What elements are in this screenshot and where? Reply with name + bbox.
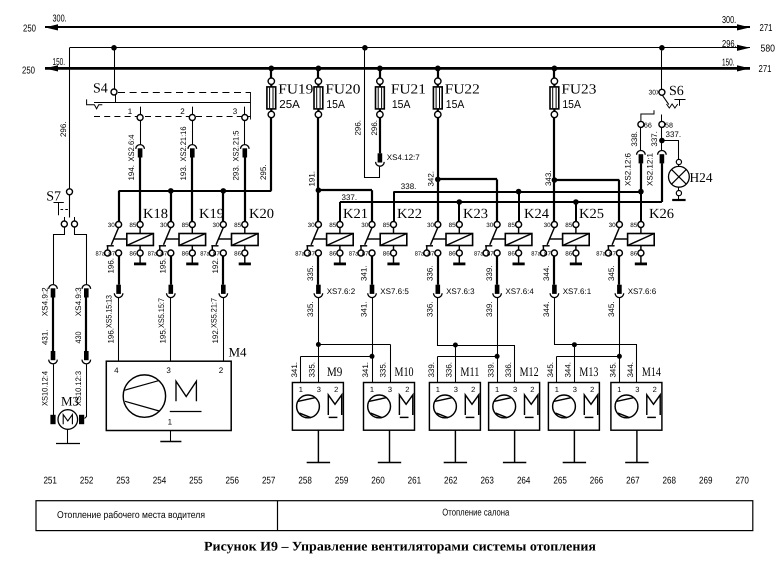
svg-text:195.: 195. xyxy=(159,258,168,274)
svg-text:250: 250 xyxy=(23,23,36,34)
svg-text:300.: 300. xyxy=(53,14,67,25)
svg-text:XS7.6:3: XS7.6:3 xyxy=(446,287,475,296)
svg-text:K24: K24 xyxy=(524,207,549,222)
svg-text:345.: 345. xyxy=(607,266,616,282)
svg-text:265: 265 xyxy=(553,475,567,486)
svg-text:337.: 337. xyxy=(666,130,682,139)
svg-text:M11: M11 xyxy=(460,364,479,379)
svg-text:339.: 339. xyxy=(427,362,436,378)
svg-text:335.: 335. xyxy=(379,362,388,378)
svg-text:XS2.21:5: XS2.21:5 xyxy=(232,130,241,162)
svg-text:1: 1 xyxy=(168,417,173,426)
svg-text:257: 257 xyxy=(262,475,276,486)
svg-text:263: 263 xyxy=(480,475,494,486)
svg-text:XS5.21:7: XS5.21:7 xyxy=(209,298,218,328)
svg-text:Рисунок И9 – Управление вентил: Рисунок И9 – Управление вентиляторами си… xyxy=(204,539,596,554)
svg-text:269: 269 xyxy=(699,475,713,486)
svg-text:266: 266 xyxy=(590,475,604,486)
svg-text:268: 268 xyxy=(663,475,677,486)
svg-text:344.: 344. xyxy=(542,266,551,282)
svg-text:FU23: FU23 xyxy=(561,82,596,97)
svg-text:K26: K26 xyxy=(649,207,674,222)
svg-text:196.: 196. xyxy=(106,258,115,274)
svg-text:25A: 25A xyxy=(279,99,300,111)
svg-text:338.: 338. xyxy=(401,182,417,191)
svg-text:256: 256 xyxy=(226,475,240,486)
svg-text:XS5.15:7: XS5.15:7 xyxy=(157,298,166,328)
svg-text:58: 58 xyxy=(665,122,673,129)
svg-text:15A: 15A xyxy=(446,99,465,111)
svg-text:Отопление салона: Отопление салона xyxy=(442,508,509,519)
svg-text:296.: 296. xyxy=(370,120,379,136)
svg-text:341.: 341. xyxy=(361,362,370,378)
svg-text:K19: K19 xyxy=(199,207,224,222)
svg-text:293.: 293. xyxy=(232,165,241,181)
svg-text:XS2.6:4: XS2.6:4 xyxy=(127,134,136,162)
svg-text:341.: 341. xyxy=(360,302,369,318)
svg-text:264: 264 xyxy=(517,475,531,486)
svg-text:66: 66 xyxy=(644,122,652,129)
svg-text:345.: 345. xyxy=(609,362,618,378)
svg-text:K20: K20 xyxy=(249,207,274,222)
svg-text:191.: 191. xyxy=(307,171,316,187)
svg-text:344.: 344. xyxy=(542,302,551,318)
svg-text:193.: 193. xyxy=(179,165,188,181)
svg-text:FU20: FU20 xyxy=(325,82,360,97)
svg-text:339.: 339. xyxy=(486,362,495,378)
svg-text:254: 254 xyxy=(153,475,167,486)
svg-text:259: 259 xyxy=(335,475,349,486)
svg-text:337.: 337. xyxy=(342,193,358,202)
svg-text:344.: 344. xyxy=(564,362,573,378)
svg-text:192.: 192. xyxy=(211,328,220,344)
svg-text:M10: M10 xyxy=(395,364,414,379)
svg-text:150.: 150. xyxy=(722,58,735,69)
svg-text:4: 4 xyxy=(114,366,119,375)
svg-text:345.: 345. xyxy=(607,302,616,318)
svg-text:FU22: FU22 xyxy=(445,82,480,97)
svg-text:K23: K23 xyxy=(463,207,488,222)
svg-text:261: 261 xyxy=(408,475,422,486)
svg-text:XS10.12:4: XS10.12:4 xyxy=(41,370,50,406)
svg-text:267: 267 xyxy=(626,475,640,486)
svg-text:271: 271 xyxy=(760,23,773,34)
svg-text:H24: H24 xyxy=(690,170,713,185)
svg-text:339.: 339. xyxy=(485,302,494,318)
svg-text:336.: 336. xyxy=(445,362,454,378)
svg-text:342.: 342. xyxy=(427,171,436,187)
svg-text:K18: K18 xyxy=(143,207,168,222)
svg-text:2: 2 xyxy=(180,107,185,116)
svg-text:XS2.12:6: XS2.12:6 xyxy=(623,152,632,186)
svg-text:335.: 335. xyxy=(308,362,317,378)
svg-text:343.: 343. xyxy=(544,171,553,187)
svg-text:3: 3 xyxy=(233,107,238,116)
svg-text:XS2.12:1: XS2.12:1 xyxy=(645,152,654,186)
svg-text:150.: 150. xyxy=(53,57,66,68)
svg-text:M12: M12 xyxy=(520,364,539,379)
svg-text:260: 260 xyxy=(371,475,385,486)
svg-text:253: 253 xyxy=(116,475,130,486)
svg-text:335.: 335. xyxy=(306,302,315,318)
svg-text:195.: 195. xyxy=(159,328,168,344)
svg-text:FU19: FU19 xyxy=(278,82,313,97)
svg-text:336.: 336. xyxy=(426,302,435,318)
svg-text:296.: 296. xyxy=(722,39,737,50)
svg-text:296.: 296. xyxy=(354,120,363,136)
svg-text:194.: 194. xyxy=(127,165,136,181)
svg-text:XS4.9:2: XS4.9:2 xyxy=(41,287,50,317)
svg-text:XS4.12:7: XS4.12:7 xyxy=(387,153,420,162)
svg-text:251: 251 xyxy=(43,475,57,486)
svg-text:M14: M14 xyxy=(642,364,661,379)
svg-text:Отопление рабочего места водит: Отопление рабочего места водителя xyxy=(57,510,205,521)
svg-text:258: 258 xyxy=(298,475,312,486)
svg-text:15A: 15A xyxy=(326,99,345,111)
svg-text:252: 252 xyxy=(80,475,94,486)
svg-text:192.: 192. xyxy=(211,258,220,274)
svg-text:XS7.6:6: XS7.6:6 xyxy=(628,287,657,296)
svg-text:XS7.6:1: XS7.6:1 xyxy=(563,287,592,296)
svg-text:XS2.21:16: XS2.21:16 xyxy=(179,126,188,162)
svg-text:3: 3 xyxy=(166,366,171,375)
svg-text:M3: M3 xyxy=(61,394,79,409)
svg-text:XS7.6:4: XS7.6:4 xyxy=(505,287,534,296)
svg-text:S4: S4 xyxy=(93,82,108,97)
svg-text:339.: 339. xyxy=(485,266,494,282)
svg-text:341.: 341. xyxy=(290,362,299,378)
svg-text:15A: 15A xyxy=(562,99,581,111)
svg-text:271: 271 xyxy=(759,64,772,75)
svg-text:338.: 338. xyxy=(630,131,639,147)
svg-text:XS7.6:5: XS7.6:5 xyxy=(380,287,409,296)
svg-text:580: 580 xyxy=(761,44,776,55)
svg-text:XS7.6:2: XS7.6:2 xyxy=(327,287,356,296)
svg-text:431.: 431. xyxy=(41,330,50,346)
svg-text:337.: 337. xyxy=(650,131,659,147)
svg-text:250: 250 xyxy=(22,65,35,76)
svg-text:XS5.15:13: XS5.15:13 xyxy=(105,295,114,328)
svg-text:2: 2 xyxy=(219,366,224,375)
svg-text:430: 430 xyxy=(74,331,83,343)
svg-text:M4: M4 xyxy=(229,345,248,360)
svg-text:K21: K21 xyxy=(343,207,368,222)
svg-text:262: 262 xyxy=(444,475,458,486)
svg-text:FU21: FU21 xyxy=(391,82,426,97)
svg-text:296.: 296. xyxy=(59,122,68,138)
svg-text:295.: 295. xyxy=(259,165,268,181)
svg-text:S6: S6 xyxy=(669,84,684,99)
svg-text:255: 255 xyxy=(189,475,203,486)
svg-text:196.: 196. xyxy=(106,328,115,344)
svg-text:270: 270 xyxy=(735,475,749,486)
svg-text:335.: 335. xyxy=(306,266,315,282)
svg-text:1: 1 xyxy=(128,107,133,116)
svg-text:341.: 341. xyxy=(360,266,369,282)
svg-text:M13: M13 xyxy=(579,364,598,379)
svg-text:300.: 300. xyxy=(722,15,736,26)
svg-text:S7: S7 xyxy=(46,190,61,205)
svg-text:M9: M9 xyxy=(327,364,343,379)
svg-text:336.: 336. xyxy=(504,362,513,378)
svg-text:K22: K22 xyxy=(397,207,422,222)
svg-text:336.: 336. xyxy=(426,266,435,282)
svg-text:K25: K25 xyxy=(579,207,604,222)
svg-text:345.: 345. xyxy=(546,362,555,378)
svg-text:15A: 15A xyxy=(392,99,411,111)
svg-text:30X: 30X xyxy=(649,89,661,96)
svg-text:XS4.9:3: XS4.9:3 xyxy=(74,287,83,317)
svg-text:344.: 344. xyxy=(626,362,635,378)
